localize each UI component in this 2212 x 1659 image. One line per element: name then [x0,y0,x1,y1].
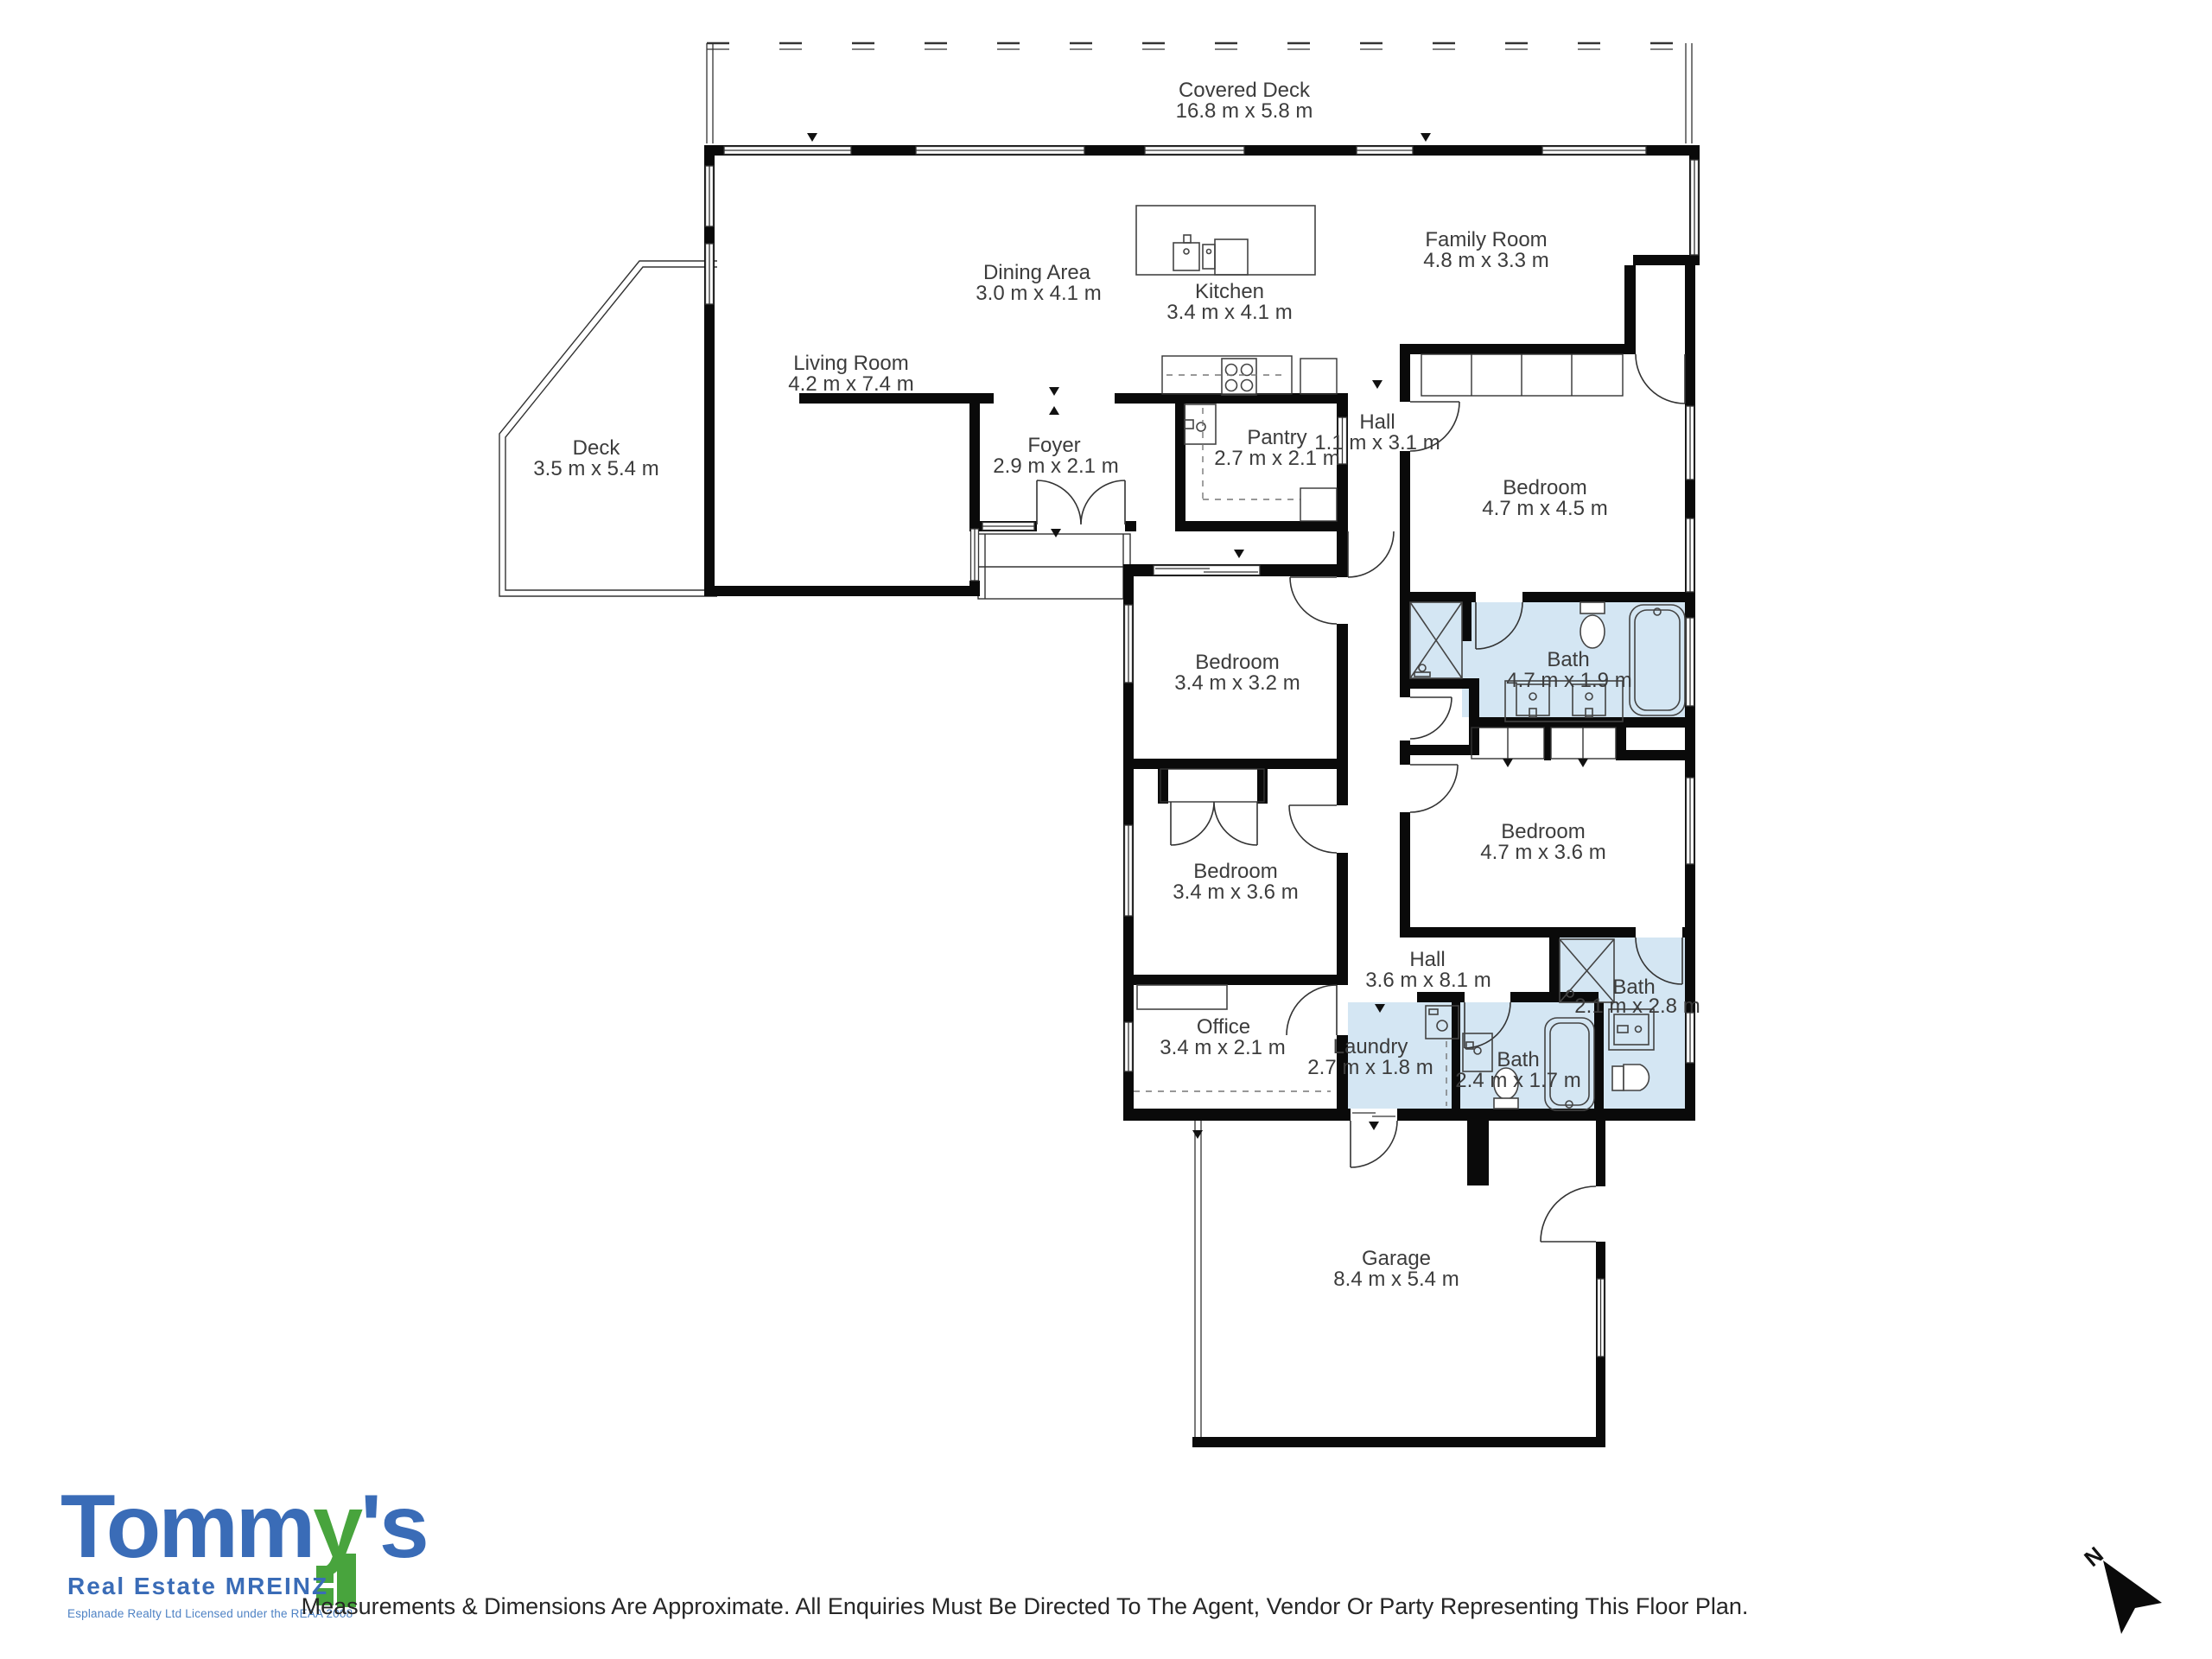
svg-text:Garage: Garage [1362,1247,1431,1270]
room-label-bedroom-4: Bedroom3.4 m x 3.6 m [1173,860,1298,904]
room-label-covered-deck: Covered Deck16.8 m x 5.8 m [1176,79,1313,123]
svg-text:Bath: Bath [1497,1048,1539,1071]
room-label-dining-area: Dining Area3.0 m x 4.1 m [976,261,1101,305]
room-label-kitchen: Kitchen3.4 m x 4.1 m [1166,280,1292,324]
svg-text:8.4 m x 5.4 m: 8.4 m x 5.4 m [1333,1268,1459,1291]
svg-text:Bedroom: Bedroom [1503,476,1586,499]
svg-text:4.7 m x 3.6 m: 4.7 m x 3.6 m [1480,841,1605,864]
closets-under-bath1 [1471,728,1616,759]
svg-text:3.5 m x 5.4 m: 3.5 m x 5.4 m [533,457,658,480]
svg-text:4.8 m x 3.3 m: 4.8 m x 3.3 m [1423,249,1548,272]
room-label-deck: Deck3.5 m x 5.4 m [533,436,658,480]
deck-outline [499,261,717,596]
room-label-foyer: Foyer2.9 m x 2.1 m [993,434,1118,478]
floorplan-page: Covered Deck16.8 m x 5.8 m Family Room4.… [0,0,2212,1659]
svg-text:Deck: Deck [573,436,621,460]
svg-text:2.7 m x 1.8 m: 2.7 m x 1.8 m [1307,1056,1433,1079]
windows [706,147,1699,1438]
north-arrow: N [2079,1541,2162,1634]
door-hall-lower [1348,521,1397,577]
svg-text:3.6 m x 8.1 m: 3.6 m x 8.1 m [1365,969,1491,992]
door-bedroom-mid-lower [1289,805,1348,853]
door-bedroom2-right [1400,765,1458,812]
toilet-bath1 [1580,602,1605,648]
sliding-window [1154,566,1260,575]
door-garage-east [1541,1186,1605,1242]
walls [704,145,1700,1447]
svg-text:3.4 m x 2.1 m: 3.4 m x 2.1 m [1160,1036,1285,1059]
svg-text:3.0 m x 4.1 m: 3.0 m x 4.1 m [976,282,1101,305]
logo-wordmark: Tommy's [60,1477,427,1577]
svg-text:Covered Deck: Covered Deck [1179,79,1311,102]
room-label-bedroom-1: Bedroom4.7 m x 4.5 m [1482,476,1607,520]
room-label-garage: Garage8.4 m x 5.4 m [1333,1247,1459,1291]
svg-text:Bedroom: Bedroom [1501,820,1585,843]
svg-text:Hall: Hall [1409,948,1445,971]
svg-text:2.9 m x 2.1 m: 2.9 m x 2.1 m [993,454,1118,478]
door-office [1287,985,1348,1035]
svg-text:3.4 m x 3.6 m: 3.4 m x 3.6 m [1173,880,1298,904]
closet-mid-bedrooms [1160,769,1264,845]
svg-text:Living Room: Living Room [793,352,908,375]
entry-porch [978,534,1130,599]
north-arrow-icon [2103,1560,2162,1634]
svg-text:2.1 m x 2.8 m: 2.1 m x 2.8 m [1574,995,1700,1018]
svg-text:16.8 m x 5.8 m: 16.8 m x 5.8 m [1176,99,1313,123]
floorplan-drawing: Covered Deck16.8 m x 5.8 m Family Room4.… [0,0,2212,1659]
toilet-bath2 [1612,1065,1649,1090]
bedroom1-closet [1421,354,1623,396]
svg-text:2.4 m x 1.7 m: 2.4 m x 1.7 m [1455,1069,1580,1092]
svg-text:4.2 m x 7.4 m: 4.2 m x 7.4 m [788,372,913,396]
door-bedroom-mid-upper [1290,577,1348,624]
svg-text:Office: Office [1197,1015,1250,1039]
garage-door-opening [1195,1121,1201,1437]
svg-text:Foyer: Foyer [1027,434,1080,457]
cooktop [1222,359,1256,395]
door-foyer-french [1037,480,1125,531]
svg-text:Bedroom: Bedroom [1193,860,1277,883]
svg-text:Family Room: Family Room [1425,228,1547,251]
svg-text:Pantry: Pantry [1247,426,1306,449]
kitchen-island [1136,206,1315,275]
svg-text:1.1 m x 3.1 m: 1.1 m x 3.1 m [1314,431,1440,454]
room-label-bedroom-2: Bedroom3.4 m x 3.2 m [1174,651,1300,695]
room-label-family-room: Family Room4.8 m x 3.3 m [1423,228,1548,272]
svg-text:Dining Area: Dining Area [983,261,1091,284]
door-laundry-garage [1351,1109,1397,1167]
room-label-living-room: Living Room4.2 m x 7.4 m [788,352,913,396]
room-label-hall-upper: Hall1.1 m x 3.1 m [1314,410,1440,454]
room-label-office: Office3.4 m x 2.1 m [1160,1015,1285,1059]
svg-text:4.7 m x 4.5 m: 4.7 m x 4.5 m [1482,497,1607,520]
room-label-bedroom-3: Bedroom4.7 m x 3.6 m [1480,820,1605,864]
svg-text:Bath: Bath [1547,648,1589,671]
north-label: N [2079,1541,2108,1572]
svg-text:3.4 m x 3.2 m: 3.4 m x 3.2 m [1174,671,1300,695]
svg-text:3.4 m x 4.1 m: 3.4 m x 4.1 m [1166,301,1292,324]
svg-text:Laundry: Laundry [1333,1035,1408,1058]
logo-subtitle: Real Estate MREINZ [67,1573,328,1599]
svg-text:Hall: Hall [1359,410,1395,434]
door-wc [1400,697,1452,741]
room-label-hall-lower: Hall3.6 m x 8.1 m [1365,948,1491,992]
svg-text:4.7 m x 1.9 m: 4.7 m x 1.9 m [1506,669,1631,692]
disclaimer-text: Measurements & Dimensions Are Approximat… [302,1593,1749,1619]
door-family-passage [1636,344,1685,404]
svg-text:Kitchen: Kitchen [1195,280,1264,303]
svg-text:Bedroom: Bedroom [1195,651,1279,674]
